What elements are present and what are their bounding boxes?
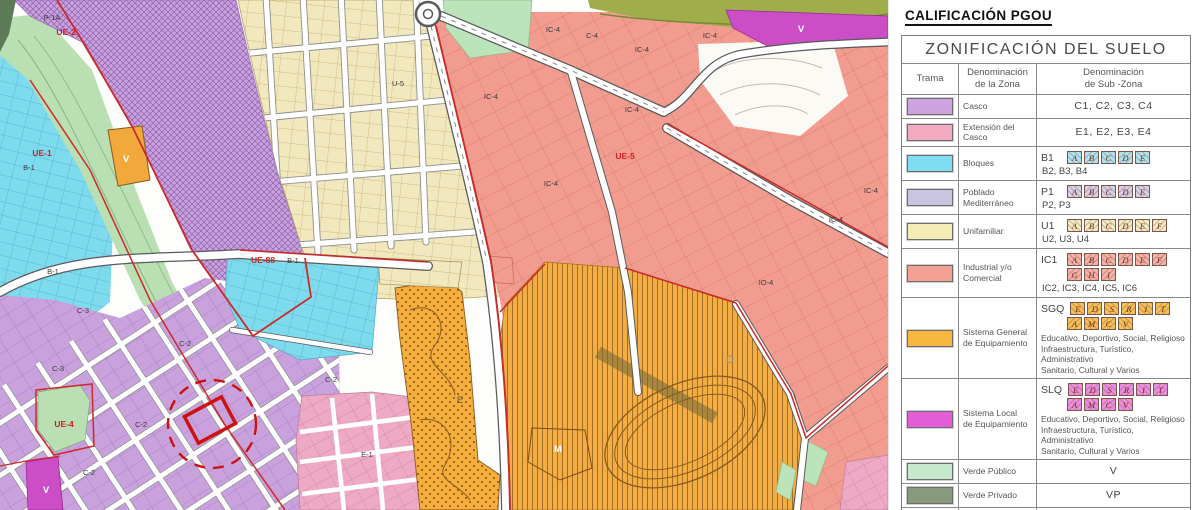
- subzone-letter-box: B: [1084, 253, 1099, 266]
- legend-row-4: UnifamiliarU1ABCDEFU2, U3, U4: [902, 215, 1190, 249]
- legend-swatch: [907, 487, 953, 504]
- zoning-map: P-1AUE-2UE-1B-1VB-1UE-88B-1C-3C-2C-3C-2U…: [0, 0, 889, 510]
- subzone-letter-box: R: [1121, 302, 1136, 315]
- legend-zone-name: Sistema Localde Equipamiento: [963, 408, 1032, 429]
- legend-row-0: CascoC1, C2, C3, C4: [902, 95, 1190, 119]
- legend-row-3: PobladoMediterráneoP1ABCDEP2, P3: [902, 181, 1190, 215]
- map-label-ic-4: IC-4: [546, 25, 560, 34]
- map-label-ic-4: IC-4: [625, 105, 639, 114]
- map-label-b-1: B-1: [23, 163, 35, 172]
- subzone-letter-box: F: [1152, 253, 1167, 266]
- legend-row-6: Sistema Generalde EquipamientoSGQEDSRITA…: [902, 298, 1190, 379]
- legend-zone-name: Unifamiliar: [963, 226, 1032, 237]
- subzone-letter-box: E: [1135, 253, 1150, 266]
- map-label-ic-4: IC-4: [829, 215, 843, 224]
- legend-subzone-text: C1, C2, C3, C4: [1041, 100, 1186, 113]
- legend-zone-name: Verde Público: [963, 466, 1032, 477]
- legend-subzone-code: SGQ: [1041, 303, 1064, 315]
- map-label-c-2: C-2: [83, 468, 95, 477]
- subzone-letter-box: B: [1084, 151, 1099, 164]
- subzone-letter-box: I: [1101, 268, 1116, 281]
- subzone-letter-box: A: [1067, 253, 1082, 266]
- legend-rows: CascoC1, C2, C3, C4Extensión delCascoE1,…: [902, 95, 1190, 510]
- legend-title: ZONIFICACIÓN DEL SUELO: [902, 36, 1190, 64]
- subzone-letter-box: C: [1101, 398, 1116, 411]
- map-label-c-3: C-3: [52, 364, 64, 373]
- subzone-letter-box: B: [1084, 219, 1099, 232]
- subzone-letter-box: E: [1135, 219, 1150, 232]
- subzone-letter-box: V: [1118, 398, 1133, 411]
- legend-row-7: Sistema Localde EquipamientoSLQEDSRITAMC…: [902, 379, 1190, 460]
- legend-header-subzona: Denominaciónde Sub -Zona: [1037, 64, 1190, 94]
- subzone-letter-box: F: [1152, 219, 1167, 232]
- legend-subzone-desc: Educativo, Deportivo, Social, ReligiosoI…: [1041, 414, 1186, 456]
- subzone-letter-box: A: [1067, 398, 1082, 411]
- legend-subzone-code: IC1: [1041, 254, 1061, 266]
- subzone-letter-box: A: [1067, 151, 1082, 164]
- subzone-letter-box: E: [1135, 185, 1150, 198]
- legend-row-9: Verde PrivadoVP: [902, 484, 1190, 508]
- subzone-letter-box: M: [1084, 317, 1099, 330]
- map-label-m: M: [554, 444, 562, 455]
- map-label-ic-4: IC-4: [703, 31, 717, 40]
- map-label-io-4: IO-4: [759, 278, 774, 287]
- legend-subzone-code: SLQ: [1041, 384, 1062, 396]
- legend-subzone-codes: U2, U3, U4: [1042, 234, 1186, 245]
- subzone-letter-box: C: [1101, 317, 1116, 330]
- map-label-e: E: [457, 395, 463, 405]
- legend-row-2: BloquesB1ABCDEB2, B3, B4: [902, 147, 1190, 181]
- map-label-ue-4: UE-4: [54, 419, 74, 429]
- legend-header: Trama Denominaciónde la Zona Denominació…: [902, 64, 1190, 95]
- legend-swatch: [907, 265, 953, 282]
- legend-subzone-code: U1: [1041, 220, 1061, 232]
- map-label-c-2: C-2: [135, 420, 147, 429]
- map-label-ue-2: UE-2: [56, 27, 76, 37]
- map-label-v: V: [123, 154, 130, 165]
- subzone-letter-box: M: [1084, 398, 1099, 411]
- roundabout: [416, 2, 440, 26]
- legend-subzone-code: P1: [1041, 186, 1061, 198]
- map-label-b-1: B-1: [287, 256, 299, 265]
- legend-zone-name: Verde Privado: [963, 490, 1032, 501]
- map-label-d: D: [726, 354, 734, 366]
- subzone-letter-box: E: [1070, 302, 1085, 315]
- legend-subzone-codes: B2, B3, B4: [1042, 166, 1186, 177]
- map-label-v: V: [798, 24, 805, 35]
- legend-subzone-desc: Educativo, Deportivo, Social, ReligiosoI…: [1041, 333, 1186, 375]
- legend-swatch: [907, 124, 953, 141]
- subzone-letter-box: E: [1135, 151, 1150, 164]
- legend-row-5: Industrial y/oComercialIC1ABCDEFGHIIC2, …: [902, 249, 1190, 298]
- subzone-letter-box: G: [1067, 268, 1082, 281]
- pgou-zoning-screen: P-1AUE-2UE-1B-1VB-1UE-88B-1C-3C-2C-3C-2U…: [0, 0, 1200, 510]
- map-label-ic-4: IC-4: [484, 92, 498, 101]
- legend-subzone-text: VP: [1041, 489, 1186, 502]
- legend-subzone-text: V: [1041, 465, 1186, 478]
- subzone-letter-box: I: [1138, 302, 1153, 315]
- map-label-e-1: E-1: [361, 450, 373, 459]
- subzone-letter-box: D: [1118, 253, 1133, 266]
- legend-subzone-text: E1, E2, E3, E4: [1041, 126, 1186, 139]
- subzone-letter-box: A: [1067, 317, 1082, 330]
- legend-swatch: [907, 411, 953, 428]
- legend-zone-name: PobladoMediterráneo: [963, 187, 1032, 208]
- legend-zone-name: Industrial y/oComercial: [963, 262, 1032, 283]
- legend-subzone-codes: P2, P3: [1042, 200, 1186, 211]
- legend-swatch: [907, 330, 953, 347]
- subzone-letter-box: C: [1101, 253, 1116, 266]
- map-label-ic-4: IC-4: [864, 186, 878, 195]
- subzone-letter-box: V: [1118, 317, 1133, 330]
- legend-row-8: Verde PúblicoV: [902, 460, 1190, 484]
- subzone-letter-box: D: [1085, 383, 1100, 396]
- legend-panel: CALIFICACIÓN PGOU ZONIFICACIÓN DEL SUELO…: [893, 0, 1200, 510]
- map-label-p-1a: P-1A: [44, 13, 61, 22]
- legend-swatch: [907, 463, 953, 480]
- legend-header-zona: Denominaciónde la Zona: [959, 64, 1037, 94]
- subzone-letter-box: C: [1101, 219, 1116, 232]
- subzone-letter-box: D: [1087, 302, 1102, 315]
- subzone-letter-box: C: [1101, 185, 1116, 198]
- zone-slq-v: [26, 457, 63, 510]
- legend-swatch: [907, 223, 953, 240]
- map-label-ic-4: IC-4: [635, 45, 649, 54]
- map-label-ue-1: UE-1: [32, 148, 52, 158]
- subzone-letter-box: R: [1119, 383, 1134, 396]
- map-label-ue-5: UE-5: [615, 151, 635, 161]
- subzone-letter-box: A: [1067, 185, 1082, 198]
- map-label-v: V: [43, 485, 50, 496]
- legend-swatch: [907, 189, 953, 206]
- legend-heading: CALIFICACIÓN PGOU: [905, 8, 1052, 26]
- map-label-c-2: C-2: [179, 339, 191, 348]
- legend-swatch: [907, 98, 953, 115]
- legend-zone-name: Casco: [963, 101, 1032, 112]
- map-label-ue-88: UE-88: [251, 255, 275, 265]
- legend-zone-name: Sistema Generalde Equipamiento: [963, 327, 1032, 348]
- map-label-c-3: C-3: [77, 306, 89, 315]
- legend-zone-name: Extensión delCasco: [963, 122, 1032, 143]
- legend-table: ZONIFICACIÓN DEL SUELO Trama Denominació…: [901, 35, 1191, 510]
- map-label-c-4: C-4: [586, 31, 598, 40]
- zoning-map-svg: P-1AUE-2UE-1B-1VB-1UE-88B-1C-3C-2C-3C-2U…: [0, 0, 888, 510]
- map-label-u-5: U-5: [392, 79, 404, 88]
- zone-extension-br: [840, 455, 888, 510]
- subzone-letter-box: H: [1084, 268, 1099, 281]
- subzone-letter-box: S: [1104, 302, 1119, 315]
- map-label-c-2: C-2: [325, 375, 337, 384]
- legend-swatch: [907, 155, 953, 172]
- subzone-letter-box: C: [1101, 151, 1116, 164]
- map-label-b-1: B-1: [47, 267, 59, 276]
- subzone-letter-box: B: [1084, 185, 1099, 198]
- subzone-letter-box: E: [1068, 383, 1083, 396]
- subzone-letter-box: T: [1153, 383, 1168, 396]
- map-label-ic-4: IC-4: [544, 179, 558, 188]
- subzone-letter-box: I: [1136, 383, 1151, 396]
- subzone-letter-box: D: [1118, 219, 1133, 232]
- subzone-letter-box: S: [1102, 383, 1117, 396]
- legend-zone-name: Bloques: [963, 158, 1032, 169]
- legend-subzone-codes: IC2, IC3, IC4, IC5, IC6: [1042, 283, 1186, 294]
- legend-row-1: Extensión delCascoE1, E2, E3, E4: [902, 119, 1190, 147]
- subzone-letter-box: T: [1155, 302, 1170, 315]
- legend-header-trama: Trama: [902, 64, 959, 94]
- subzone-letter-box: D: [1118, 151, 1133, 164]
- legend-subzone-code: B1: [1041, 152, 1061, 164]
- subzone-letter-box: D: [1118, 185, 1133, 198]
- subzone-letter-box: A: [1067, 219, 1082, 232]
